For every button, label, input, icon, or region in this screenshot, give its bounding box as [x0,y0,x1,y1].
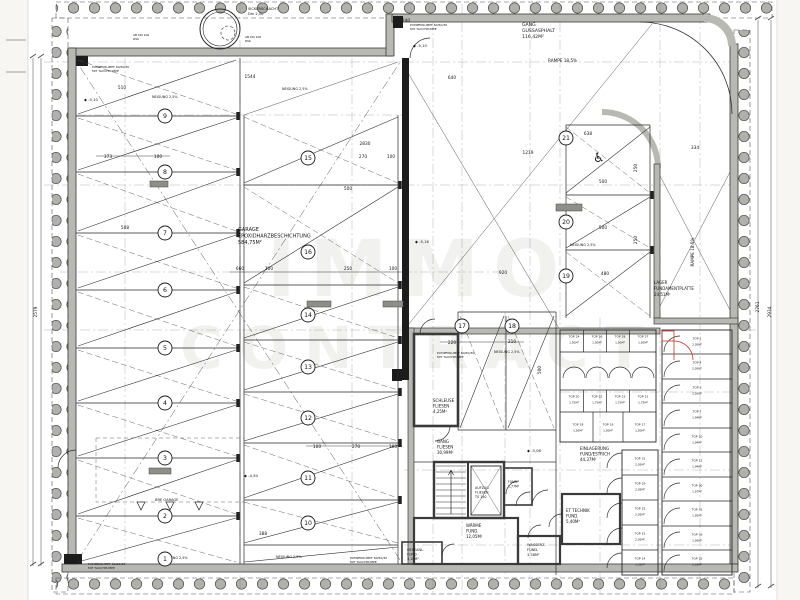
parking-spot-number: 20 [562,219,570,226]
schleuse-label: SCHLEUSE [433,398,455,403]
gang-gussasphalt-label: GUSSASPHALT [522,28,555,34]
storage-cell-area: 1,50M² [592,341,602,345]
parking-spot-number: 7 [163,230,167,237]
storage-cell-area: 2,05M² [692,392,702,396]
storage-cell-area: 1,50M² [603,429,613,433]
gang-fliesen-label: FLIESEN [437,445,453,450]
storage-cell-name: TOP 22 [591,395,603,399]
waerme-label: 12,05M² [466,534,483,539]
storage-cell-name: TOP 29 [634,482,646,486]
storage-cell-name: TOP 15 [634,532,646,536]
storage-cell-name: TOP 36 [691,533,703,537]
storage-cell-name: TOP 3 [692,386,702,390]
sickerschacht-label: Dm 2,00 [248,12,264,16]
et-technik-label: 5,40M² [566,519,580,524]
dimension-label: 2934 [767,306,773,317]
storage-cell-area: 1,50M² [635,429,645,433]
dimension-label: 270 [359,154,367,160]
storage-cell-area: 1,50M² [615,341,625,345]
aufzug-label: TS 140 [474,495,486,499]
dimension-label: 100 [389,444,397,450]
parking-spot-number: 17 [458,323,466,330]
dimension-label: 100 [387,154,395,160]
storage-cell-area: 1,35M² [635,563,645,567]
dimension-label: 640 [448,75,456,81]
dimension-label: 250 [633,164,639,172]
dimension-label: 373 [104,154,112,160]
storage-cell-name: TOP 14 [634,557,646,561]
fund-kleinraum-label: FUND. [508,480,518,484]
storage-cell-area: 1,95M² [692,514,702,518]
storage-cell-area: 2,05M² [692,367,702,371]
garage-label: EPOXIDHARZBESCHICHTUNG [238,234,311,240]
dimension-label: 334 [691,145,699,151]
gang-gussasphalt-label: 116,42M² [522,34,544,40]
dimension-label: 510 [118,85,126,91]
storage-cell-area: 1,50M² [638,341,648,345]
fund-kleinraum-label: 1,77M² [508,484,520,488]
wasserz-label: FUND. [527,548,538,552]
storage-cell-area: 1,50M² [569,341,579,345]
drain-note-1: RSK [133,37,140,41]
dimension-label: 100 [154,154,162,160]
dimension-label: 250 [633,236,639,244]
rampe-side-label: RAMPE 18,5% [690,237,695,266]
dimension-label: 2761 [755,301,761,312]
pumpensumpf-4: MIT TAUCHPUMPE [350,560,377,564]
floor-plan-page: IMMO CONTRACT [0,0,800,600]
parking-spot-number: 2 [163,513,167,520]
parking-spot-number: 21 [562,135,570,142]
storage-cell-area: 1,75M² [569,401,579,405]
dimension-label: 2579 [33,306,39,317]
einlagerung-label: 44,37M² [580,457,597,462]
storage-cell-name: TOP 2 [692,337,702,341]
parking-spot-number: 13 [304,364,312,371]
parking-spot-number: 18 [508,323,516,330]
garage-label: GARAGE [238,227,259,233]
wasserz-label: 3,58M² [527,553,540,557]
storage-cell-name: TOP 12 [691,459,703,463]
storage-cell-area: 2,05M² [635,463,645,467]
dimension-label: 920 [499,270,507,276]
dimension-label: 100 [265,266,273,272]
dimension-label: 210 [508,339,516,345]
neigung-6: NEIGUNG 2,5% [276,555,302,559]
storage-cell-name: TOP 23 [614,395,626,399]
parking-spot-number: 6 [163,287,167,294]
hebeanl-label: FUND. [407,553,418,557]
dimension-label: 660 [236,266,244,272]
parking-spot-number: 1 [163,556,167,563]
dimension-label: 500 [344,186,352,192]
pumpensumpf-2: MIT TAUCHPUMPE [410,27,437,31]
dimension-label: 480 [601,271,609,277]
dimension-label: 500 [599,225,607,231]
storage-cell-area: 1,75M² [615,401,625,405]
storage-cell-name: TOP 19 [602,423,614,427]
storage-cell-name: TOP 28 [614,335,626,339]
dimension-label: 100 [313,444,321,450]
storage-cell-area: 1,94M² [692,465,702,469]
et-technik-label: ET TECHNIK [566,508,590,513]
storage-cell-area: 2,05M² [635,488,645,492]
storage-cell-area: 1,75M² [592,401,602,405]
level-marker: ◆ -5,16 [415,239,430,244]
neigung-3: NEIGUNG 2,5% [494,350,520,354]
storage-cell-name: TOP 31 [634,457,646,461]
drain-note-2: RSK [245,39,252,43]
parking-spot-number: 3 [163,455,167,462]
waerme-label: WÄRME [466,523,482,528]
storage-cell-name: TOP 7 [692,410,702,414]
hebeanl-label: HEBEANL. [407,548,424,552]
neigung-2: NEIGUNG 2,5% [282,87,308,91]
parking-spot-number: 8 [163,169,167,176]
lager-fundamentplatte-label: LAGER [654,280,668,285]
dimension-label: 2830 [360,141,371,147]
storage-cell-area: 2,05M² [635,538,645,542]
einlagerung-label: EINLAGERUNG [580,446,609,451]
storage-cell-name: TOP 18 [572,423,584,427]
et-technik-label: FUND. [566,514,579,519]
storage-cell-name: TOP 20 [568,395,580,399]
aufzug-label: AUFZUG [475,486,489,490]
parking-spot-number: 16 [304,249,312,256]
storage-cell-area: 1,97M² [692,490,702,494]
storage-cell-area: 1,94M² [692,416,702,420]
neigung-1: NEIGUNG 2,5% [152,95,178,99]
storage-cell-name: TOP 35 [691,508,703,512]
parking-spot-number: 12 [304,415,312,422]
floorplan-svg: IMMO CONTRACT [0,0,800,600]
gang-fliesen-label: GANG [437,439,449,444]
storage-cell-name: TOP 21 [637,395,649,399]
level-marker: ◆ -4,94 [244,473,259,478]
dimension-label: 270 [352,444,360,450]
pumpensumpf-3: MIT TAUCHPUMPE [437,355,464,359]
level-marker: ◆ -5,10 [413,43,428,48]
parking-spot-number: 19 [562,273,570,280]
pumpensumpf-1: MIT TAUCHPUMPE [92,69,119,73]
storage-cell-area: 1,95M² [692,539,702,543]
parking-spot-number: 5 [163,345,167,352]
dimension-label: 1219 [523,150,534,156]
parking-spot-number: 9 [163,113,167,120]
schleuse-label: 4,25M² [433,409,447,414]
bre-garage-label: BRE GARAGE [155,498,179,502]
aufzug-label: FLIESEN [475,491,489,495]
level-marker: ◆ -5,10 [84,97,99,102]
dimension-label: 100 [389,266,397,272]
hebeanl-label: 3,18M² [407,557,419,561]
gang-gussasphalt-label: GANG [522,22,536,28]
dimension-label: 220 [448,340,456,346]
dimension-label: 500 [537,366,543,374]
storage-cell-area: 1,94M² [692,441,702,445]
dimension-label: 388 [259,531,267,537]
waerme-label: FUND. [466,529,479,534]
dimension-label: 240 [402,18,410,24]
schleuse-label: FLIESEN [433,404,449,409]
storage-cell-name: TOP 32 [691,557,703,561]
storage-cell-name: TOP 10 [691,435,703,439]
parking-spot-number: 4 [163,400,167,407]
rampe-top-label: RAMPE 18,5% [548,58,577,63]
storage-cell-name: TOP 17 [634,423,646,427]
dimension-label: 508 [121,225,129,231]
storage-cell-area: 1,50M² [573,429,583,433]
storage-cell-name: TOP 30 [691,484,703,488]
wheelchair-icon: ♿ [593,151,605,166]
storage-cell-name: TOP 24 [568,335,580,339]
storage-cell-area: 2,05M² [635,513,645,517]
neigung-4: NEIGUNG 2,5% [570,243,596,247]
storage-cell-name: TOP 25 [634,507,646,511]
dimension-label: 250 [344,266,352,272]
pumpensumpf-5: MIT TAUCHPUMPE [88,566,115,570]
dimension-label: 638 [584,131,592,137]
lager-fundamentplatte-label: 24,51M² [654,292,671,297]
sickerschacht-label: SICKERSCHACHT [248,7,279,11]
storage-cell-name: TOP 4 [692,361,702,365]
storage-cell-area: 1,75M² [638,401,648,405]
parking-spot-number: 15 [304,155,312,162]
parking-spot-number: 10 [304,520,312,527]
storage-cell-area: 2,52M² [692,563,702,567]
dimension-label: 1544 [245,74,256,80]
storage-cell-name: TOP 26 [591,335,603,339]
lager-fundamentplatte-label: FUNDAMENTPLATTE [654,286,694,291]
garage-label: 584,75M² [238,240,262,246]
storage-cell-name: TOP 27 [637,335,649,339]
gang-fliesen-label: 30,99M² [437,450,454,455]
dimension-label: 500 [599,179,607,185]
level-marker: ◆ -5,06 [527,448,542,453]
wasserz-label: WASSERZ. [527,543,546,547]
storage-cell-area: 2,05M² [692,343,702,347]
parking-spot-number: 14 [304,312,312,319]
parking-spot-number: 11 [304,475,312,482]
einlagerung-label: FUND/ESTRICH [580,452,610,457]
